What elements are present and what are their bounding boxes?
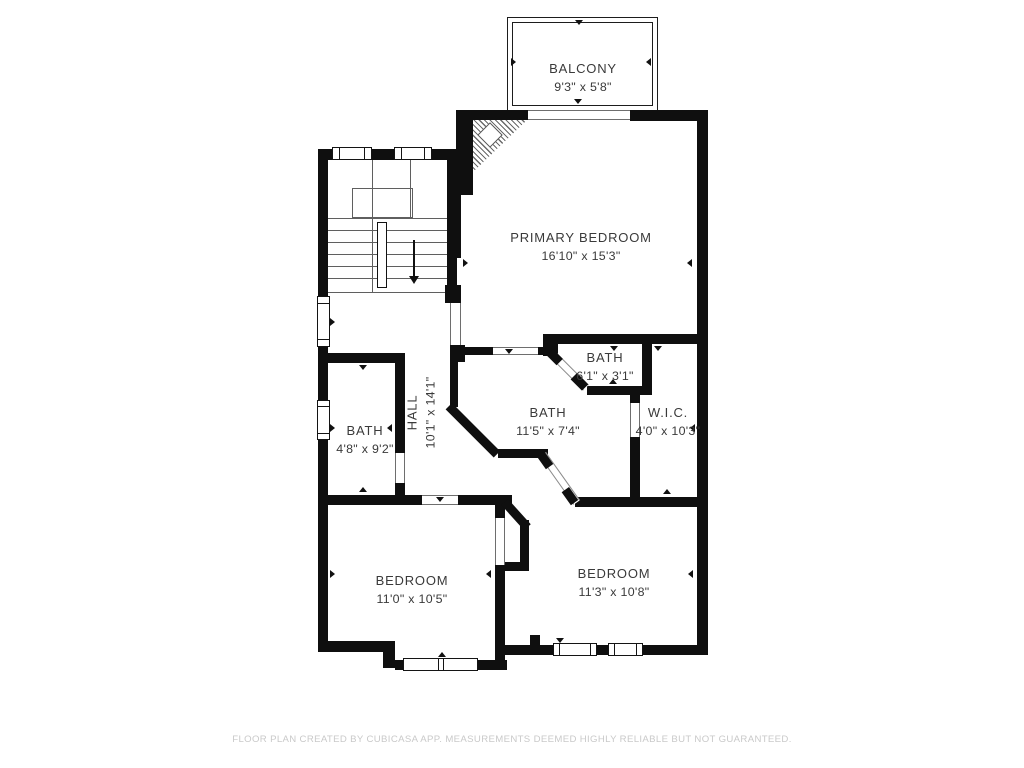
window-mullion <box>318 406 329 407</box>
window-mullion <box>339 148 340 159</box>
window-mullion <box>590 644 591 655</box>
window-bedroom-right-1 <box>553 643 597 656</box>
window-bedroom-right-2 <box>608 643 643 656</box>
wall-bedroom-left-top <box>318 495 422 505</box>
room-label-wic: W.I.C. 4'0" x 10'3" <box>612 405 724 438</box>
footer-disclaimer: FLOOR PLAN CREATED BY CUBICASA APP. MEAS… <box>0 734 1024 745</box>
stair-tread <box>328 254 447 255</box>
wall-bath-wic-top <box>543 334 708 344</box>
chimney-hatch <box>473 120 527 172</box>
door-bath-left <box>395 453 405 483</box>
room-label-bath-left: BATH 4'8" x 9'2" <box>305 423 425 456</box>
wall-right-exterior <box>697 110 708 655</box>
wall-vestibule-diagonal <box>501 499 530 530</box>
room-dims: 10'1" x 14'1" <box>424 343 438 483</box>
room-dims: 4'0" x 10'3" <box>612 424 724 438</box>
wall-wic-left <box>630 437 640 499</box>
stair-tread <box>328 266 447 267</box>
measure-tick-icon <box>359 365 367 370</box>
room-dims: 11'5" x 7'4" <box>478 424 618 438</box>
window-mullion <box>318 303 329 304</box>
wall-stairs-right-lower <box>447 258 457 287</box>
wall-bottom-c1 <box>505 645 553 655</box>
window-stairs-2 <box>394 147 432 160</box>
room-dims: 16'10" x 15'3" <box>481 249 681 263</box>
window-mullion <box>364 148 365 159</box>
window-mullion <box>559 644 560 655</box>
opening-hall-primary <box>450 303 461 345</box>
room-label-hall: HALL 10'1" x 14'1" <box>405 343 438 483</box>
stair-tread <box>328 242 447 243</box>
measure-tick-icon <box>687 259 692 267</box>
window-stairs-1 <box>332 147 372 160</box>
window-mullion <box>438 659 439 670</box>
wall-wic-left-stub <box>630 386 640 403</box>
measure-tick-icon <box>556 638 564 643</box>
measure-tick-icon <box>359 487 367 492</box>
room-name: BATH <box>545 350 665 365</box>
room-label-bath-center: BATH 11'5" x 7'4" <box>478 405 618 438</box>
window-mullion <box>614 644 615 655</box>
room-name: BEDROOM <box>332 573 492 588</box>
window-bedroom-left <box>403 658 478 671</box>
wall-bottom-c2 <box>597 645 608 655</box>
stair-tread <box>328 218 447 219</box>
stair-bottom-line <box>328 292 445 293</box>
wall-bottom-c3 <box>643 645 707 655</box>
wall-bath-left-door-stub <box>395 483 405 495</box>
room-name: BALCONY <box>503 61 663 76</box>
stair-landing <box>352 188 413 218</box>
room-name: BEDROOM <box>534 566 694 581</box>
wall-vestibule-bottom <box>503 562 529 571</box>
window-mullion <box>424 148 425 159</box>
measure-tick-icon <box>575 20 583 25</box>
measure-tick-icon <box>330 318 335 326</box>
wall-bedroom-right-top <box>575 497 635 507</box>
measure-tick-icon <box>436 497 444 502</box>
stair-tread <box>328 230 447 231</box>
wall-stairs-corner <box>445 285 461 303</box>
stair-direction-arrow-icon <box>409 276 419 284</box>
room-name: HALL <box>405 343 420 483</box>
wall-wic-bottom <box>630 497 708 507</box>
wall-bottom-b2 <box>476 660 507 670</box>
wall-bath-left-top <box>318 353 405 363</box>
wall-bottom-closet-stub <box>530 635 540 647</box>
floor-plan: BALCONY 9'3" x 5'8" PRIMARY BEDROOM 16'1… <box>0 0 1024 768</box>
room-dims: 6'1" x 3'1" <box>545 369 665 383</box>
room-label-bedroom-right: BEDROOM 11'3" x 10'8" <box>534 566 694 599</box>
wall-divider-bottom <box>495 565 505 665</box>
wall-bottom-a <box>318 641 390 652</box>
window-hall <box>317 296 330 347</box>
measure-tick-icon <box>663 489 671 494</box>
opening-bedroom-divider <box>495 518 505 565</box>
window-mullion <box>636 644 637 655</box>
measure-tick-icon <box>438 652 446 657</box>
stair-arrow-line <box>413 240 415 278</box>
room-name: BATH <box>305 423 425 438</box>
stair-guide-line-1 <box>372 160 373 292</box>
window-mullion <box>443 659 444 670</box>
measure-tick-icon <box>505 349 513 354</box>
window-mullion <box>318 339 329 340</box>
stair-handrail <box>377 222 387 288</box>
wall-bottom-step <box>383 641 395 668</box>
door-bath-center <box>493 347 538 355</box>
room-label-balcony: BALCONY 9'3" x 5'8" <box>503 61 663 94</box>
measure-tick-icon <box>574 99 582 104</box>
room-name: W.I.C. <box>612 405 724 420</box>
room-dims: 4'8" x 9'2" <box>305 442 425 456</box>
stair-tread <box>328 278 447 279</box>
room-name: BATH <box>478 405 618 420</box>
room-dims: 11'3" x 10'8" <box>534 585 694 599</box>
room-label-bedroom-left: BEDROOM 11'0" x 10'5" <box>332 573 492 606</box>
wall-bath-center-left <box>450 347 458 407</box>
wall-top-left <box>456 110 528 120</box>
room-dims: 11'0" x 10'5" <box>332 592 492 606</box>
measure-tick-icon <box>463 259 468 267</box>
room-name: PRIMARY BEDROOM <box>481 230 681 245</box>
room-dims: 9'3" x 5'8" <box>503 80 663 94</box>
door-balcony <box>528 110 630 120</box>
wall-primary-corner-block <box>456 110 473 195</box>
room-label-bath-small: BATH 6'1" x 3'1" <box>545 350 665 383</box>
window-mullion <box>401 148 402 159</box>
room-label-primary-bedroom: PRIMARY BEDROOM 16'10" x 15'3" <box>481 230 681 263</box>
